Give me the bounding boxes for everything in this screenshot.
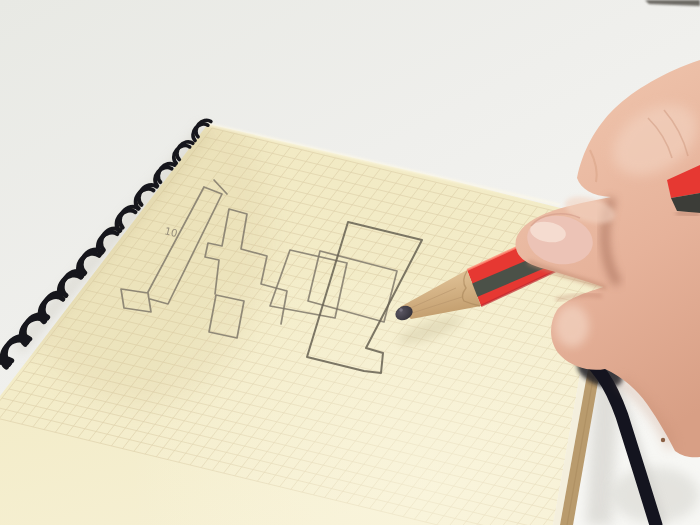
skin-mole [661,438,665,442]
graphite-glint [399,308,403,312]
screenshot-root: { "scene": { "title": "Hand holding a re… [0,0,700,525]
pencil-upper-shadow [676,213,700,215]
photo-stage: 10 [0,0,700,525]
fingertip-highlight [555,305,589,347]
photo-canvas: 10 [0,0,700,525]
